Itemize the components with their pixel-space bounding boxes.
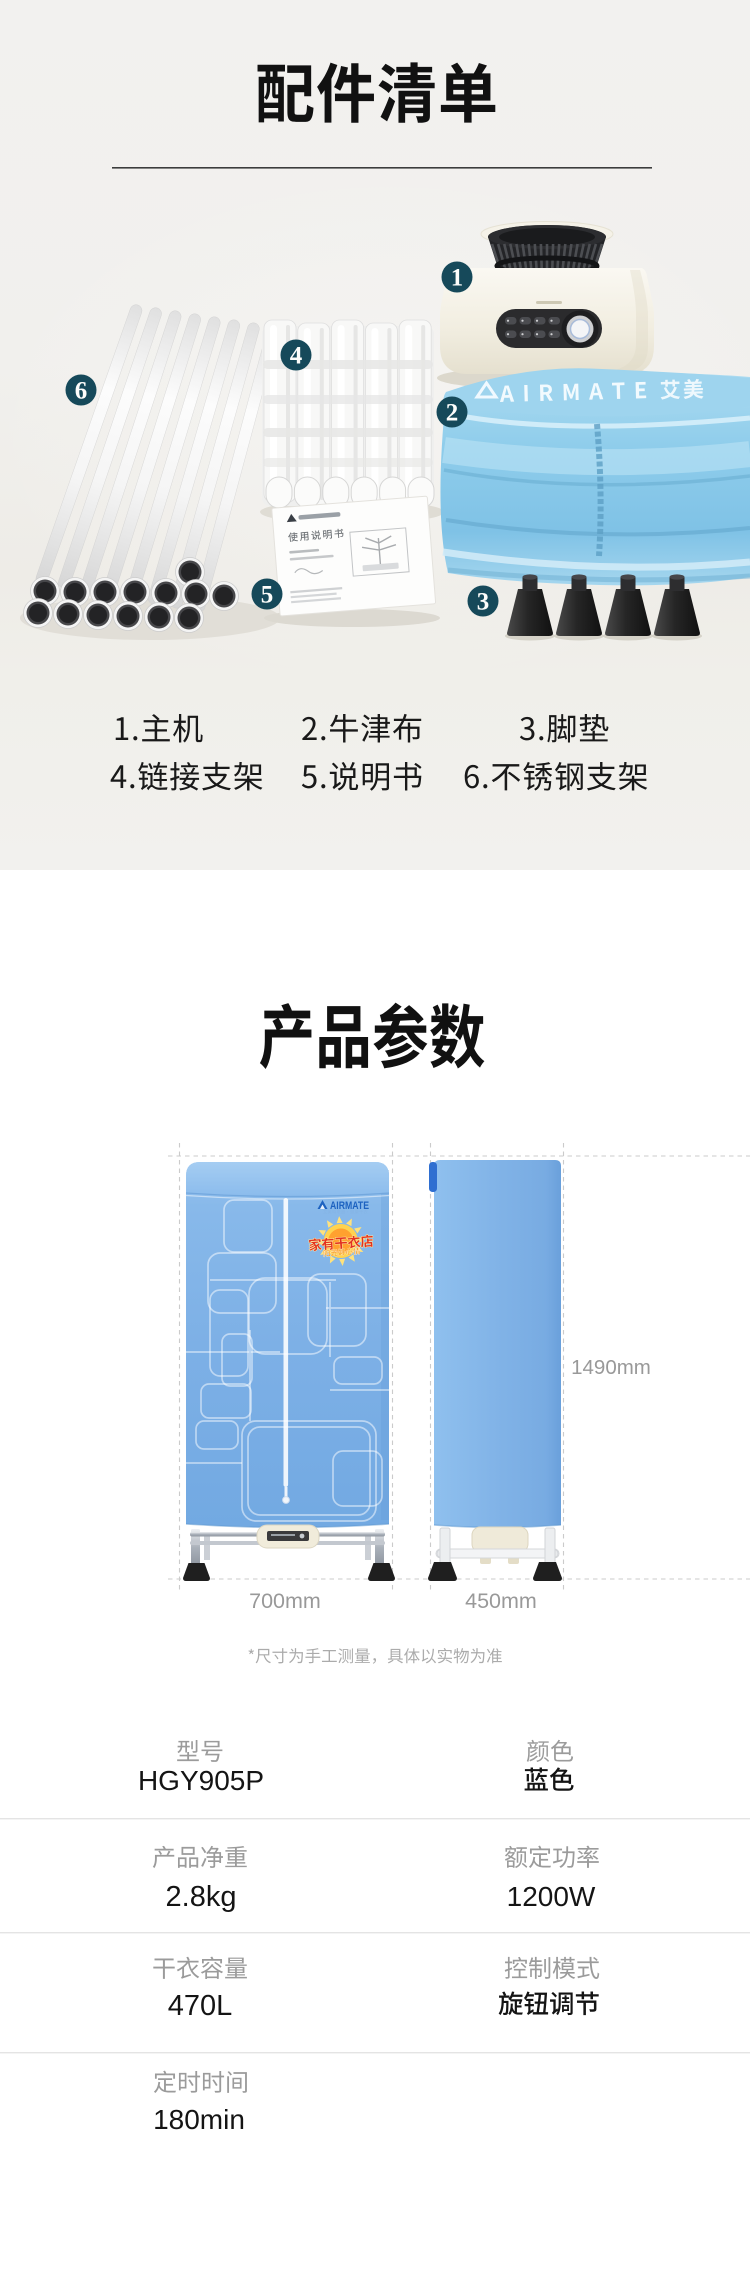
svg-text:6: 6 [75,378,88,405]
svg-text:AIRMATE: AIRMATE [330,1200,369,1212]
svg-text:450mm: 450mm [465,1589,537,1613]
svg-text:470L: 470L [168,1990,233,2022]
svg-text:700mm: 700mm [249,1589,321,1613]
svg-text:2: 2 [446,400,459,427]
svg-text:HGY905P: HGY905P [138,1765,264,1796]
svg-text:1: 1 [451,265,464,292]
svg-text:3: 3 [477,589,490,616]
svg-text:1490mm: 1490mm [571,1356,651,1379]
svg-text:2.8kg: 2.8kg [166,1881,237,1913]
svg-text:1200W: 1200W [507,1881,596,1912]
svg-text:4: 4 [290,343,303,370]
svg-text:5: 5 [261,582,274,609]
svg-text:180min: 180min [153,2104,245,2135]
